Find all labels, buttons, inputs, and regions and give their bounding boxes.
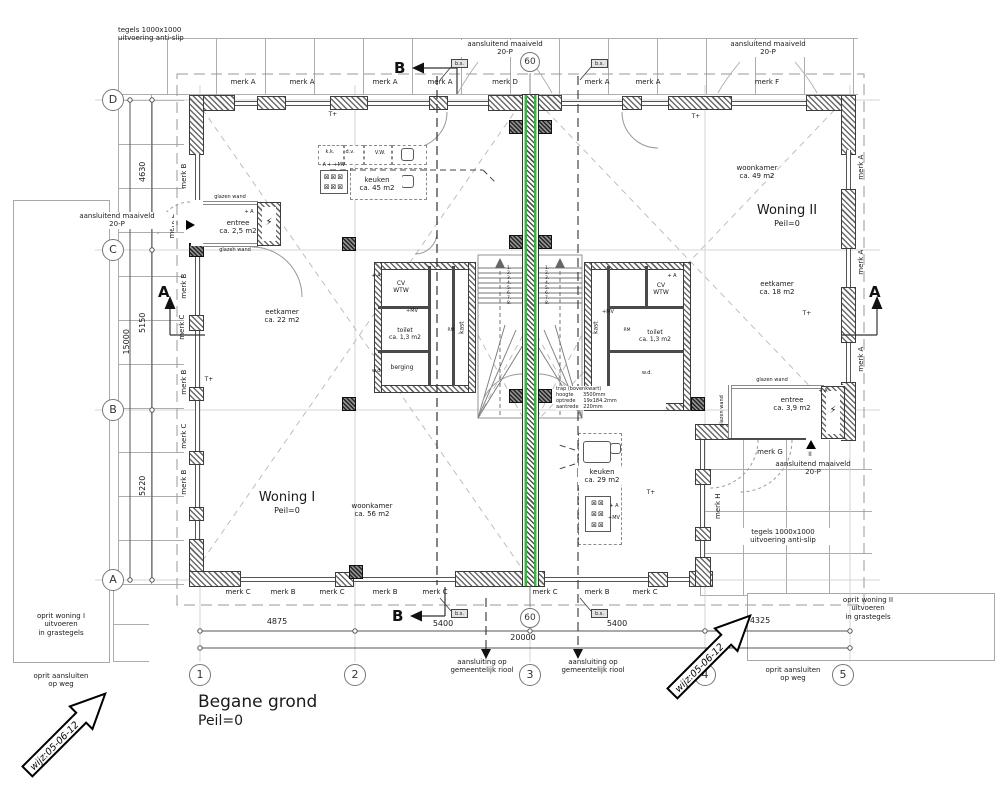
grid-bubble-col-5: 5 [832,664,854,686]
kitchen-unit-label-dv: d.v. [342,149,358,155]
smoke-detector-label: RM [620,328,634,333]
wall-mark-label: merk A [365,78,405,86]
maaiveld-note: aansluitend maaiveld 20-P [718,40,818,57]
wall-mark-label: merk C [180,416,188,456]
wall-mark-label: merk A [857,242,865,282]
wall-mark-label: merk A [577,78,617,86]
wd-label: w.d. [640,370,654,376]
wd-label: w.d. [370,368,384,374]
room-label-eetkamer2: eetkamer ca. 18 m2 [747,280,807,297]
bs-tag: b.s. [451,59,468,68]
room-label-berging: berging [382,364,422,371]
stair-tread-numbers: 1.2.3.4.5.6.7.8. [545,266,557,306]
section-letter-a-left: A [158,283,170,301]
wall-mark-label: merk A [628,78,668,86]
unit-label-woning1: Woning I [247,490,327,506]
wall-mark-label: merk C [415,588,455,596]
lightning-icon: ⚡ [826,405,840,417]
sight-lines [330,170,575,470]
room-label-toilet1: toilet ca. 1,3 m2 [382,327,428,341]
wall-mark-label: merk G [745,448,795,456]
driveway2-note: oprit woning II uitvoeren in grastegels [778,596,958,621]
sewer-note: aansluiting op gemeentelijk riool [437,658,527,675]
section-letter-b-bottom: B [392,607,403,625]
dim-left-1: 4630 [138,152,148,192]
drawing-title: Begane grond [198,692,418,712]
wall-mark-label: merk A [420,78,460,86]
unit-level-woning2: Peil=0 [747,219,827,229]
wall-mark-label: merk A [223,78,263,86]
revision-text: wijz:05-06-12 [673,642,726,695]
vent-mv-symbol: +MV [604,515,624,521]
glass-wall-label: glazen wand [210,247,260,253]
thermostat-symbol: T+ [326,111,340,118]
grid-bubble-col-2: 2 [344,664,366,686]
vent-row-symbol: A + +MV [314,162,354,168]
maaiveld-note: aansluitend maaiveld 20-P [62,212,172,229]
sewer-note: aansluiting op gemeentelijk riool [548,658,638,675]
grid-bubble-row-a: A [102,569,124,591]
kitchen-unit-label-vw: V.W. [371,150,389,156]
room-label-entree2: entree ca. 3,9 m2 [762,396,822,413]
glass-wall-label: glazen wand [205,194,255,200]
room-label-woonkamer1: woonkamer ca. 56 m2 [342,502,402,519]
wall-mark-label: merk B [180,156,188,196]
wall-mark-label: merk C [178,307,186,347]
wall-mark-label: merk A [857,339,865,379]
vent-symbol: + A [814,388,832,394]
room-label-keuken2: keuken ca. 29 m2 [578,468,626,485]
entrance-marker-2 [806,440,816,449]
vent-symbol: + A [240,209,258,215]
section-b-line [422,68,457,616]
dim-left-2: 5150 [138,303,148,343]
vent-symbol: + A [367,273,385,279]
bs-tag: b.s. [451,609,468,618]
bs-tag: b.s. [591,609,608,618]
dim-left-3: 5220 [138,466,148,506]
section-letter-a-right: A [869,283,881,301]
room-label-keuken1: keuken ca. 45 m2 [352,176,402,193]
driveway1-note: oprit woning I uitvoeren in grastegels [15,612,107,637]
thermostat-symbol: T+ [800,310,814,317]
room-label-entree1: entree ca. 2,5 m2 [210,219,266,236]
lightning-icon: ⚡ [262,217,276,229]
thermostat-symbol: T+ [689,113,703,120]
room-label-cv2: CV WTW [646,282,676,296]
sewer-lines [486,76,578,650]
dim-bottom-3: 5400 [587,619,647,629]
section-b-arrowhead [412,63,424,74]
bs-tag: b.s. [591,59,608,68]
floor-plan-sheet: ⊠⊠⊠ ⊠⊠⊠ ⊠⊠ ⊠⊠ ⊠⊠ [0,0,1000,801]
wall-mark-label: merk B [263,588,303,596]
smoke-detector-label: RM [444,328,458,333]
vent-symbol: + A [604,503,624,509]
dim-bottom-2: 5400 [413,619,473,629]
unit-level-woning1: Peil=0 [247,506,327,516]
vent-mv-symbol: +MV [598,309,618,315]
drawing-level: Peil=0 [198,713,318,730]
glass-wall-label: glazen wand [747,377,797,383]
wall-mark-label: merk A [282,78,322,86]
revision-arrow-left: wijz:05-06-12 [0,658,130,788]
revision-arrow-right: wijz:05-06-12 [645,580,775,710]
maaiveld-note: aansluitend maaiveld 20-P [765,460,861,477]
glass-wall-label: glazen wand [719,386,725,436]
wall-mark-label: merk B [180,266,188,306]
tiles-note-bottom: tegels 1000x1000 uitvoering anti-slip [727,528,839,545]
vent-mv-symbol: +MV [402,308,422,314]
unit-label-woning2: Woning II [747,203,827,219]
kitchen-unit-label-kk: k.k. [322,149,338,155]
grid-bubble-row-c: C [102,239,124,261]
entrance-marker-1 [186,220,195,230]
grid-bubble-col-3: 3 [519,664,541,686]
room-label-toilet2: toilet ca. 1,3 m2 [632,329,678,343]
vent-symbol: + A [663,273,681,279]
stair-spec-note: trap (bovenkwart) hoogte 3500mm optrede … [556,386,666,410]
wall-mark-label: merk B [577,588,617,596]
wall-mark-label: merk F [747,78,787,86]
stair-tread-numbers: 1.2.3.4.5.6.7.8. [507,266,519,306]
grid-bubble-col-1: 1 [189,664,211,686]
grid-bubble-row-b: B [102,399,124,421]
wall-mark-label: merk C [218,588,258,596]
thermostat-symbol: T+ [202,376,216,383]
revision-text: wijz:05-06-12 [28,720,81,773]
room-label-woonkamer2: woonkamer ca. 49 m2 [727,164,787,181]
wall-mark-label: merk C [312,588,352,596]
entrance-number: I [172,220,182,227]
tiles-note-top: tegels 1000x1000 uitvoering anti-slip [118,26,238,43]
wall-mark-label: merk B [180,462,188,502]
entrance-number: II [802,451,818,458]
wall-mark-label: merk C [525,588,565,596]
wall-mark-label: merk A [857,147,865,187]
room-label-kast1: kast [458,313,465,343]
maaiveld-note: aansluitend maaiveld 20-P [455,40,555,57]
dim-bottom-total: 20000 [493,633,553,643]
thermostat-symbol: T+ [644,489,658,496]
dim-left-total: 15000 [122,322,132,362]
room-label-eetkamer1: eetkamer ca. 22 m2 [252,308,312,325]
section-letter-b-top: B [394,59,405,77]
room-label-cv1: CV WTW [386,280,416,294]
party-wall-bubble-top: 60 [520,52,540,72]
party-wall-bubble-bottom: 60 [520,608,540,628]
wall-mark-label: merk H [714,486,722,526]
room-label-kast2: kast [592,313,599,343]
grid-bubble-row-d: D [102,89,124,111]
wall-mark-label: merk D [485,78,525,86]
wall-mark-label: merk B [180,362,188,402]
dim-bottom-1: 4875 [247,617,307,627]
wall-mark-label: merk B [365,588,405,596]
